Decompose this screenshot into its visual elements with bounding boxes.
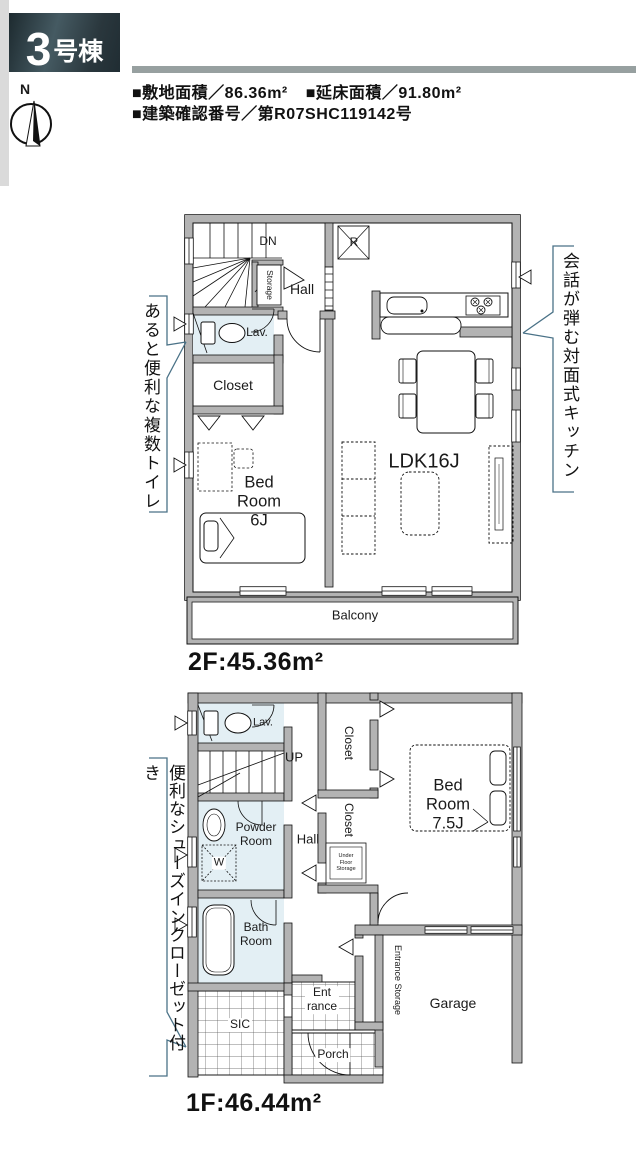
room-label-bath-room: Bath Room [231,921,281,949]
room-label-powder-room: Powder Room [227,821,285,849]
badge-suffix: 号棟 [53,32,103,68]
room-label-bedroom-75j: Bed Room 7.5J [415,777,481,834]
room-label-closet-2f: Closet [213,377,253,393]
room-label-sic: SIC [228,1018,252,1032]
building-confirmation-number: ■建築確認番号／第R07SHC119142号 [132,100,412,124]
floor1-area-label: 1F:46.44m² [186,1089,322,1118]
property-info-line2: ■建築確認番号／第R07SHC119142号 [132,100,412,124]
caption-kitchen: 会話が弾む対面式キッチン [557,252,582,482]
room-label-bedroom-6j: Bed Room 6J [227,474,291,531]
room-label-entrance: Ent rance [305,986,339,1014]
coffee-table-icon [401,472,439,535]
header-divider-bar [132,66,636,73]
caption-shoes-closet: 便利なシューズインクローゼット付き [138,764,188,1069]
room-label-washer: W [212,857,226,870]
floor2-plan [174,215,531,644]
north-compass-icon [11,101,51,146]
building-number-badge: 3 号棟 [9,13,120,72]
badge-number: 3 [26,28,52,72]
floor2-area-label: 2F:45.36m² [188,648,324,677]
room-label-entrance-storage: Entrance Storage [393,945,403,1015]
sliding-door [325,267,333,310]
room-label-refrigerator: R [350,236,359,250]
room-label-hall-1f: Hall [297,833,319,848]
room-label-hall-2f: Hall [290,281,314,297]
room-label-lav-1f: Lav. [253,717,273,730]
room-label-porch: Porch [315,1048,350,1062]
room-label-closet-upper: Closet [341,726,355,760]
scan-edge-strip [0,0,9,186]
room-label-storage: Storage [264,270,274,300]
room-label-up: UP [285,751,303,766]
room-label-lav-2f: Lav. [246,326,268,340]
room-label-closet-lower: Closet [341,803,355,837]
compass-north-label: N [20,81,30,97]
room-label-dn: DN [259,235,276,249]
room-label-balcony: Balcony [332,609,378,624]
caption-multiple-toilets: あると便利な複数トイレ [138,302,163,517]
floorplan-page: 3 号棟 ■敷地面積／86.36m² ■延床面積／91.80m² ■建築確認番号… [0,0,641,1169]
room-label-garage: Garage [430,995,477,1011]
room-label-under-floor-storage: Under Floor Storage [333,853,359,873]
room-label-ldk: LDK16J [388,451,459,474]
